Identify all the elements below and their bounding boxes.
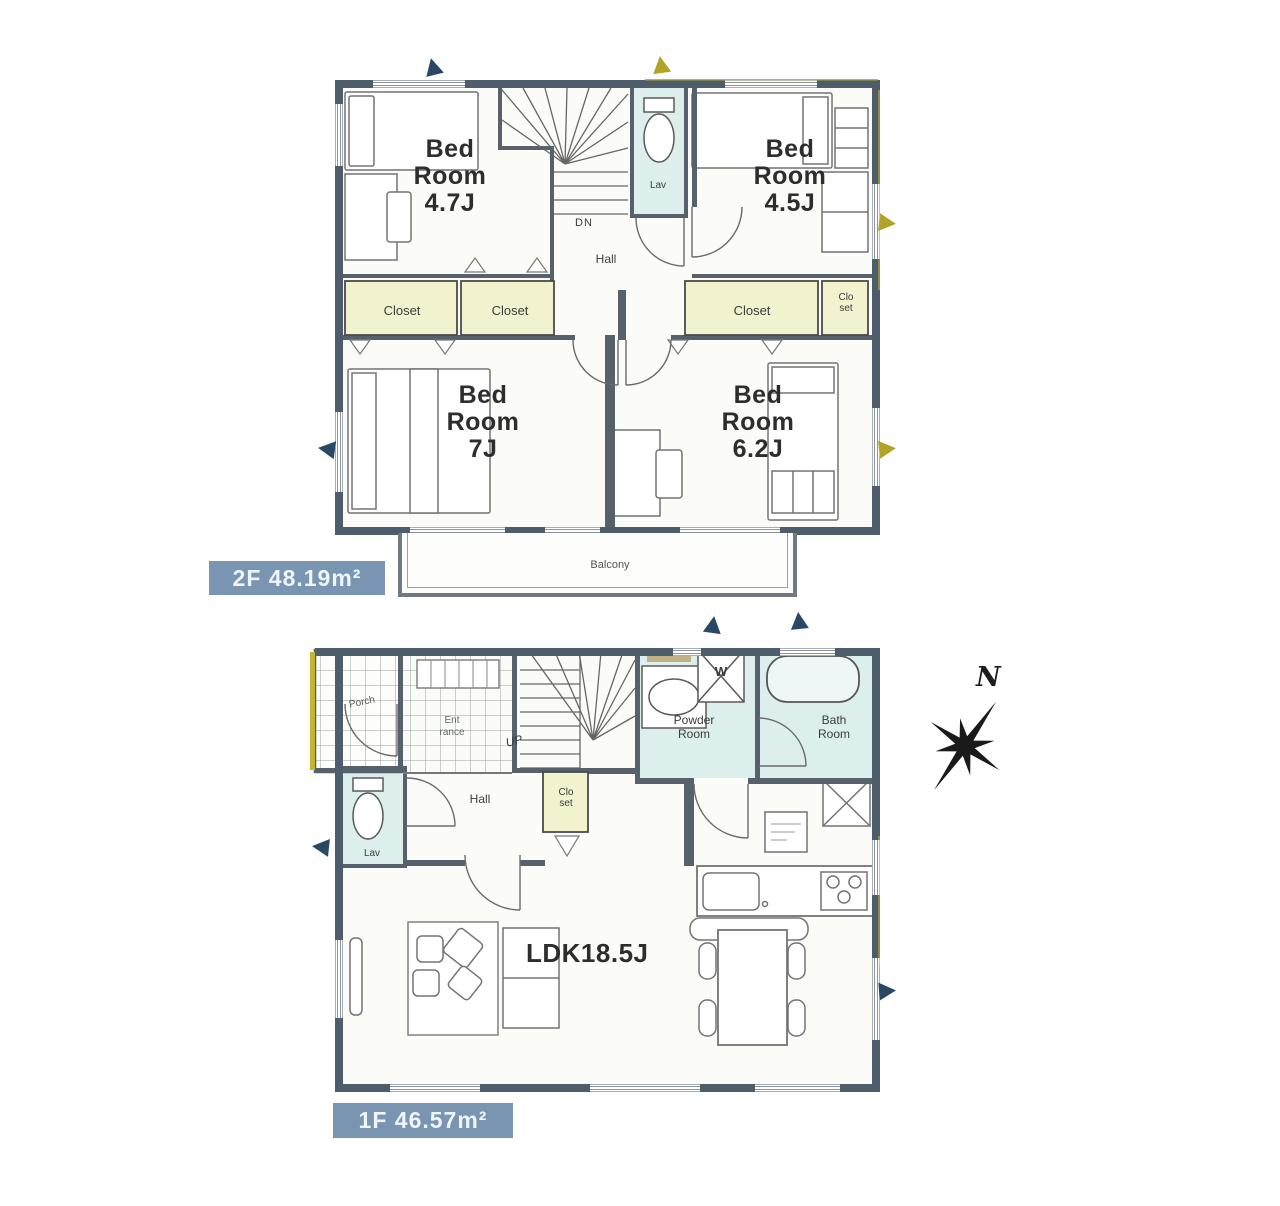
direction-arrow-icon: [317, 439, 336, 459]
direction-arrow-icon: [789, 611, 809, 630]
bedroom-ne-label: Bed Room 4.5J: [723, 136, 857, 217]
lav-2f-label: Lav: [640, 180, 676, 191]
north-label: N: [976, 662, 1001, 693]
washer-label: W: [709, 664, 733, 679]
floor2-area-chip: 2F 48.19m²: [209, 561, 385, 595]
porch-area: [310, 650, 401, 772]
floor1-plan: [335, 640, 880, 1100]
toilet-icon: [353, 778, 383, 839]
bedroom-se-label: Bed Room 6.2J: [691, 382, 825, 463]
tv-board: [350, 938, 362, 1015]
closet-label: Closet: [460, 303, 560, 318]
sofa-set: [408, 922, 498, 1035]
closet-label: Closet: [702, 303, 802, 318]
bedroom-nw-label: Bed Room 4.7J: [383, 136, 517, 217]
compass-rose-icon: [908, 688, 1023, 803]
direction-arrow-icon: [878, 439, 897, 459]
direction-arrow-icon: [878, 981, 896, 1000]
balcony-label: Balcony: [545, 559, 675, 571]
kitchen-counter: [697, 866, 875, 916]
floorplan-page: Balcony Bed Room 4.7J Bed Room 4.5J Bed …: [0, 0, 1280, 1206]
lav-1f-label: Lav: [354, 848, 390, 859]
refrigerator-icon: [823, 780, 870, 826]
direction-arrow-icon: [422, 56, 444, 77]
bathtub-icon: [767, 656, 859, 702]
entrance-area: [403, 652, 512, 773]
ldk-label: LDK18.5J: [526, 940, 696, 967]
entrance-label: Ent rance: [416, 715, 488, 739]
hall-2f-label: Hall: [576, 252, 636, 266]
direction-arrow-icon: [311, 837, 330, 857]
direction-arrow-icon: [878, 213, 897, 233]
closet-label: Closet: [352, 303, 452, 318]
direction-arrow-icon: [651, 55, 671, 74]
toilet-icon: [644, 98, 674, 162]
bedroom-sw-label: Bed Room 7J: [416, 382, 550, 463]
direction-arrow-icon: [703, 615, 723, 634]
floor1-plan-drawing: [335, 640, 880, 1100]
stairs-dn-label: DN: [566, 217, 602, 229]
powder-room-label: Powder Room: [644, 713, 744, 741]
bath-room-label: Bath Room: [794, 713, 874, 741]
cupboard-icon: [765, 812, 807, 852]
closet-1f-label: Clo set: [546, 787, 586, 809]
hall-1f-label: Hall: [450, 792, 510, 806]
closet-small-label: Clo set: [826, 292, 866, 314]
floor1-area-chip: 1F 46.57m²: [333, 1103, 513, 1138]
